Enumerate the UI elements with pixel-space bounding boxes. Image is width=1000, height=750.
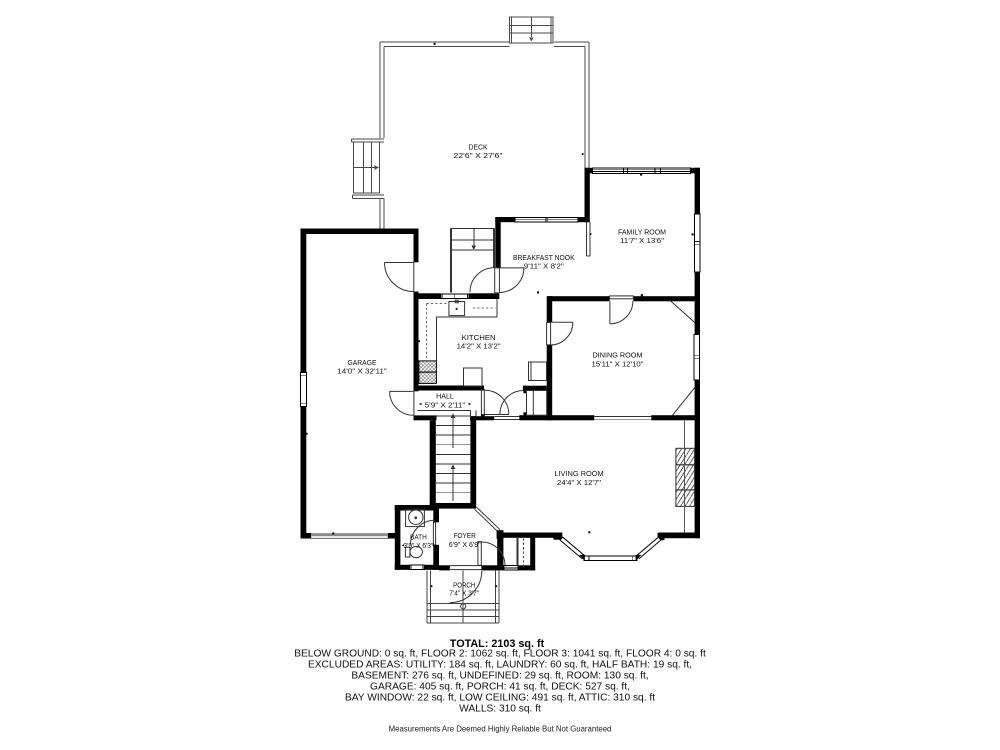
svg-text:BASEMENT: 276 sq. ft, UNDEFINE: BASEMENT: 276 sq. ft, UNDEFINED: 29 sq. … [351,671,648,682]
svg-text:22'6" X 27'6": 22'6" X 27'6" [454,151,503,160]
svg-text:14'0" X 32'11": 14'0" X 32'11" [337,366,387,375]
svg-text:GARAGE: 405 sq. ft, PORCH: 41: GARAGE: 405 sq. ft, PORCH: 41 sq. ft, DE… [370,682,630,693]
svg-text:WALLS: 310 sq. ft: WALLS: 310 sq. ft [459,704,541,715]
svg-text:7'4" X 3'7": 7'4" X 3'7" [449,589,479,598]
svg-text:6'9" X 6'9": 6'9" X 6'9" [449,540,481,549]
svg-text:14'2" X 13'2": 14'2" X 13'2" [457,342,501,351]
svg-text:Measurements Are Deemed Highly: Measurements Are Deemed Highly Reliable … [389,725,612,734]
svg-text:24'4" X 12'7": 24'4" X 12'7" [557,478,601,487]
svg-text:LIVING ROOM: LIVING ROOM [554,469,603,478]
svg-text:BELOW GROUND: 0 sq. ft, FLOOR: BELOW GROUND: 0 sq. ft, FLOOR 2: 1062 sq… [294,649,706,660]
svg-text:EXCLUDED AREAS: UTILITY: 184 s: EXCLUDED AREAS: UTILITY: 184 sq. ft, LAU… [308,660,692,671]
svg-text:BAY WINDOW: 22 sq. ft, LOW CEI: BAY WINDOW: 22 sq. ft, LOW CEILING: 491 … [345,693,655,704]
svg-text:DINING ROOM: DINING ROOM [593,351,643,360]
svg-text:3'9" X 6'3": 3'9" X 6'3" [404,541,434,550]
svg-text:15'11" X 12'10": 15'11" X 12'10" [592,360,644,369]
svg-text:5'9" X 2'11": 5'9" X 2'11" [425,400,466,409]
svg-text:HALL: HALL [436,392,454,401]
svg-text:9'11" X 8'2": 9'11" X 8'2" [524,262,564,271]
svg-text:11'7" X 13'6": 11'7" X 13'6" [620,236,664,245]
